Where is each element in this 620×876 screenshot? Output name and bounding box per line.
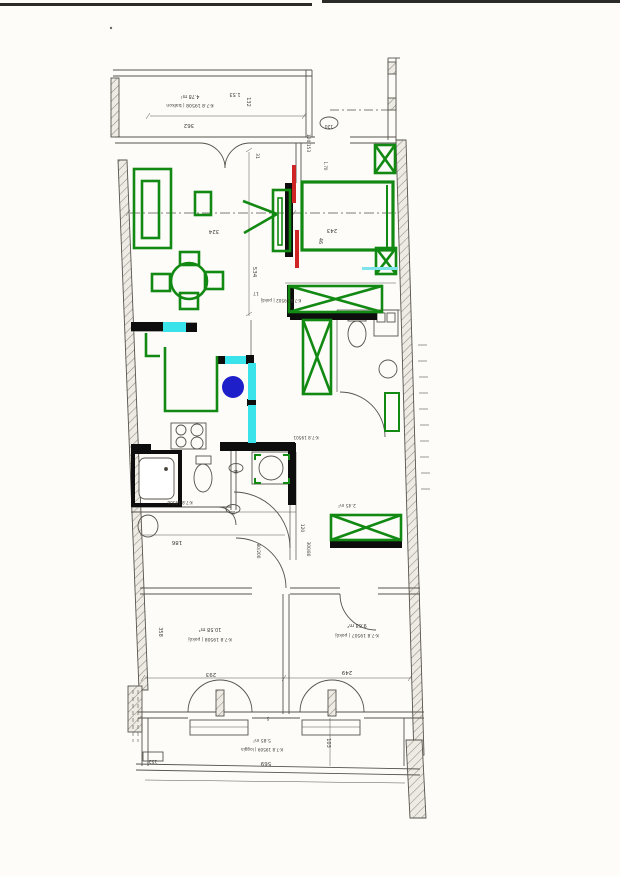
cyan-wall-seg1 [163,322,186,332]
living-stamp-id: K-7.8 19502 | pokój [261,298,301,303]
loggia-stamp-area: 5.85 m² [253,737,271,743]
plan-labels: 4.78 m² K-7.8 19508 | balkon 362 1.53 13… [149,91,379,766]
dim-120-153: 120/153 [305,134,311,152]
toilet-tank [196,456,211,464]
kitchen-counter [165,347,217,411]
dim-40: 40 [233,469,239,474]
coffee-table [195,192,211,215]
dim-362: 362 [184,122,195,128]
wc-stamp-id: K-7.8 19501 [293,435,318,440]
sink-unit [374,310,398,336]
radiator [385,393,399,431]
loggia-stamp-id: K-7.8 19509 | loggia [241,747,283,752]
room-left-stamp-id: K-7.8 19508 | pokój [188,636,231,643]
right-bottom-wall [406,740,426,818]
dim-152: 152 [149,758,158,764]
room-left-stamp-area: 10.58 m² [199,626,222,632]
left-bottom-wall [128,686,142,732]
dim-170: 1.70 [323,162,328,171]
nightstand-top [375,145,395,173]
shower-drain [165,468,168,471]
living-stamp-area: 17 [253,290,259,296]
hall-wardrobe [331,515,401,540]
shower-tray [139,458,174,499]
bathroom-stamp-id: K-7.8 19506 [167,500,192,505]
sofa-seat [142,181,159,238]
room-right-stamp-area: 9.63 m² [347,622,367,628]
dim-132: 132 [245,97,251,107]
bath-wall-right [288,443,296,505]
kitchen-corner-mark [146,333,160,356]
dim-358: 358 [157,627,163,637]
cyan-thin-line [362,267,398,270]
scan-artifacts [0,0,620,29]
scanned-floorplan-page: 4.78 m² K-7.8 19508 | balkon 362 1.53 13… [0,0,620,876]
scanner-edge-line-right [322,0,620,3]
dim-293: 293 [205,671,216,677]
round-sink [379,360,397,378]
scan-speck [110,27,112,29]
dim-120-hall: 120 [299,524,305,533]
red-line-bottom [295,230,299,268]
kitchen-wall-seg1 [131,322,163,331]
bath-wall-seg2 [220,442,295,451]
dim-186: 186 [171,539,182,545]
floorplan-drawing: 4.78 m² K-7.8 19508 | balkon 362 1.53 13… [0,0,620,876]
tall-cabinet [303,320,331,394]
cyan-wall-seg3 [248,363,256,400]
balcony-door-arc-right [225,143,250,168]
dim-249: 249 [341,669,352,675]
hall-area-label: 2.45 m² [338,502,356,508]
french-windows [188,680,364,735]
balcony-stamp-area: 4.78 m² [181,93,200,99]
kitchen-wall-seg2 [186,323,197,332]
dim-324: 324 [208,228,219,234]
room-right-stamp-id: K-7.8 19507 | pokój [335,632,378,639]
bedroom-wardrobe [289,286,382,312]
right-outer-wall [396,140,424,758]
red-line-top [292,165,296,203]
scanner-edge-line-left [0,3,312,6]
stove [171,423,206,449]
dim-534: 534 [251,267,257,278]
dim-103: 103 [325,738,331,748]
dim-120-oval: 120 [325,123,334,129]
wall-block3 [247,399,256,406]
chair-left [152,274,170,291]
dim-569: 569 [260,760,271,766]
cyan-wall-seg4 [248,405,256,443]
dim-31: 31 [254,153,260,159]
dim-46: 46 [317,238,323,244]
blue-dot-marker [222,376,244,398]
wall-block2 [246,355,254,364]
right-wall-ticks [418,345,430,489]
balcony-stamp-id: K-7.8 19508 | balkon [166,102,213,108]
dim-300-80: 300/80 [306,542,311,557]
chair-bottom [180,293,198,309]
dim-80-200: 80/200 [256,544,261,559]
dim-5: 5 [266,716,269,721]
nightstand-bottom [376,248,396,274]
toilet-bowl [194,464,212,492]
tv-screen [278,198,282,245]
loggia [133,690,420,783]
wc-bowl [348,321,366,347]
balcony-door-arc-left [200,143,225,168]
washer-brackets [255,455,289,483]
dim-153: 1.53 [229,91,240,97]
dim-243: 243 [326,227,337,233]
washing-machine [252,452,290,484]
red-marks [292,165,299,268]
bed [302,182,393,250]
cyan-wall-seg2 [225,356,246,364]
dim-60: 60 [230,510,236,515]
